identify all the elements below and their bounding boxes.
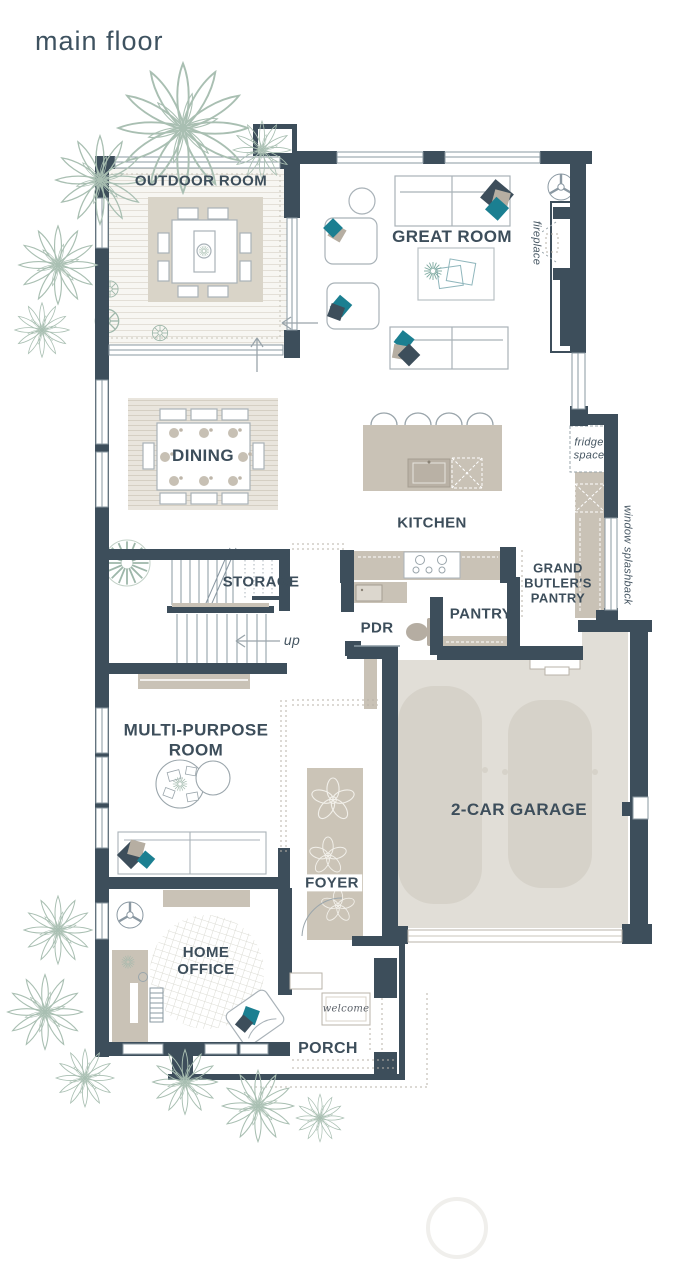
label-pantry: PANTRY [450,605,512,622]
label-porch: PORCH [298,1040,358,1058]
label-multi-purpose-room: MULTI-PURPOSE ROOM [104,720,289,759]
multi-purpose-furniture [117,760,266,874]
label-storage: STORAGE [223,573,300,590]
great-room-furniture [325,176,510,369]
label-up: up [284,632,300,648]
up-arrow-icon [236,635,280,647]
label-garage: 2-CAR GARAGE [451,800,587,820]
label-kitchen: KITCHEN [397,514,466,531]
floor-plan-drawing [0,0,700,1270]
label-fridge-space: fridge space [567,436,611,461]
label-outdoor-room: OUTDOOR ROOM [135,172,267,189]
bar-stools [371,413,493,425]
car [398,686,482,904]
label-window-splashback: window splashback [621,505,634,605]
label-grand-butlers-pantry: GRAND BUTLER'S PANTRY [511,562,605,607]
staircase [167,548,285,666]
label-foyer: FOYER [302,874,362,891]
label-home-office: HOME OFFICE [156,944,256,979]
label-fireplace: fireplace [530,221,543,265]
plant-icon [173,777,187,791]
label-welcome: welcome [323,1003,370,1015]
office-shelf [163,890,250,907]
car [508,700,592,888]
entry-step [290,973,322,989]
floor-plan-page: main floor [0,0,700,1270]
plant-icon [105,541,148,584]
watermark-circle [428,1199,486,1257]
stove [404,552,460,578]
door-panel [364,655,377,709]
label-dining: DINING [172,446,234,466]
label-great-room: GREAT ROOM [392,227,512,247]
label-pdr: PDR [361,619,394,636]
ceiling-fan-icon [117,902,143,928]
side-table [349,188,375,214]
